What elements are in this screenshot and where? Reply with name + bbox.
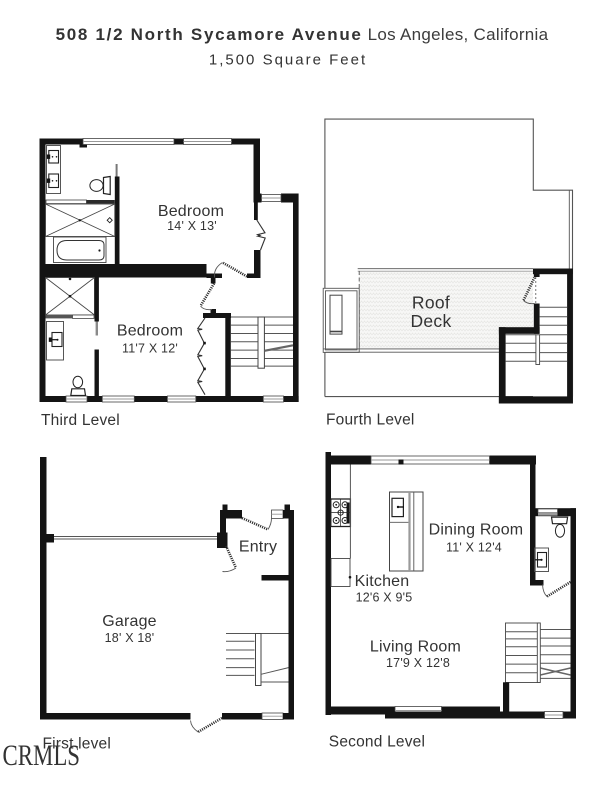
svg-text:Kitchen: Kitchen [355, 573, 410, 590]
svg-text:Second Level: Second Level [329, 734, 425, 751]
svg-text:14' X 13': 14' X 13' [167, 219, 217, 233]
svg-text:17'9 X 12'8: 17'9 X 12'8 [386, 656, 450, 670]
svg-text:Dining Room: Dining Room [429, 522, 524, 539]
svg-text:Fourth Level: Fourth Level [326, 412, 415, 429]
svg-text:1,500 Square Feet: 1,500 Square Feet [209, 52, 367, 69]
svg-text:Third Level: Third Level [41, 412, 120, 429]
svg-text:11'7 X 12': 11'7 X 12' [122, 342, 178, 356]
svg-text:Living Room: Living Room [370, 639, 461, 656]
svg-text:Bedroom: Bedroom [158, 203, 224, 220]
svg-text:Bedroom: Bedroom [117, 323, 183, 340]
svg-text:Roof: Roof [412, 293, 450, 313]
svg-text:Entry: Entry [239, 539, 277, 556]
svg-text:18' X 18': 18' X 18' [105, 631, 155, 645]
svg-text:12'6 X 9'5: 12'6 X 9'5 [356, 591, 413, 605]
svg-text:Garage: Garage [102, 613, 157, 630]
svg-text:11' X 12'4: 11' X 12'4 [446, 541, 502, 555]
svg-text:CRMLS: CRMLS [3, 739, 81, 772]
svg-text:508 1/2 North Sycamore Avenue: 508 1/2 North Sycamore Avenue Los Angele… [56, 25, 549, 44]
svg-text:Deck: Deck [410, 311, 451, 331]
